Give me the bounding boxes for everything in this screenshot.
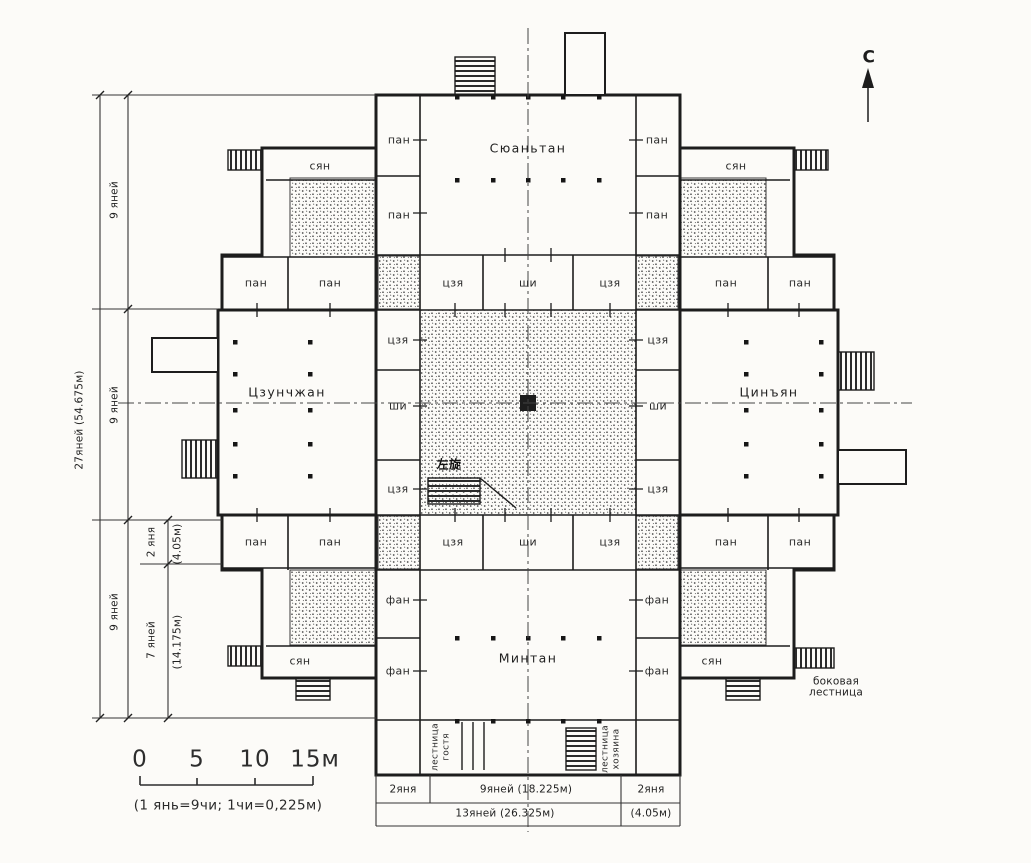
room-label-jia-5: цзя	[647, 335, 668, 346]
room-label-pan-7: пан	[715, 278, 737, 289]
room-label-fan-4: фан	[645, 666, 670, 677]
side-stair-label: боковая лестница	[800, 677, 872, 698]
room-label-jia-7: цзя	[442, 537, 463, 548]
room-label-shi-4: ши	[519, 537, 537, 548]
dim-2yan-m: (4.05м)	[173, 524, 184, 565]
room-label-fan-3: фан	[645, 595, 670, 606]
room-label-fan-2: фан	[386, 666, 411, 677]
guest-stair-label: лестница гостя	[431, 715, 452, 779]
room-label-syan-4: сян	[701, 656, 722, 667]
room-label-shi-3: ши	[649, 401, 667, 412]
dim-bottom-9yan: 9яней (18.225м)	[480, 785, 572, 796]
dim-2yan: 2 яня	[147, 527, 158, 558]
room-label-syan-2: сян	[725, 161, 746, 172]
scale-tick-10: 10	[239, 755, 270, 766]
room-label-syan-1: сян	[309, 161, 330, 172]
hall-label-north: Сюаньтан	[490, 143, 567, 154]
room-label-pan-6: пан	[319, 278, 341, 289]
dim-bottom-4m: (4.05м)	[631, 809, 672, 820]
floor-plan-page: Сюаньтан Цзунчжан Цинъян Минтан пан пан …	[0, 0, 1031, 863]
floor-plan-drawing	[0, 0, 1031, 863]
dim-total-height: 27яней (54.675м)	[75, 370, 86, 469]
dim-9yan-2: 9 яней	[110, 386, 121, 424]
room-label-pan-12: пан	[789, 537, 811, 548]
owner-stair-label: лестница хозяина	[601, 717, 622, 781]
dim-9yan-3: 9 яней	[110, 593, 121, 631]
scale-tick-0: 0	[132, 755, 148, 766]
room-label-syan-3: сян	[289, 656, 310, 667]
dim-bottom-2yan-left: 2яня	[390, 785, 417, 796]
left-turn-annotation: 左旋	[437, 460, 462, 471]
room-label-fan-1: фан	[386, 595, 411, 606]
room-label-jia-4: цзя	[387, 484, 408, 495]
room-label-pan-11: пан	[715, 537, 737, 548]
dim-7yan: 7 яней	[147, 621, 158, 659]
dim-bottom-13yan: 13яней (26.325м)	[455, 809, 554, 820]
room-label-shi-1: ши	[519, 278, 537, 289]
dim-9yan-1: 9 яней	[110, 181, 121, 219]
hall-label-south: Минтан	[499, 653, 558, 664]
room-label-pan-5: пан	[245, 278, 267, 289]
room-label-jia-6: цзя	[647, 484, 668, 495]
scale-tick-5: 5	[189, 755, 205, 766]
room-label-jia-8: цзя	[599, 537, 620, 548]
room-label-pan-3: пан	[646, 135, 668, 146]
dim-7yan-m: (14.175м)	[173, 615, 184, 670]
room-label-pan-8: пан	[789, 278, 811, 289]
scale-tick-15: 15м	[290, 755, 340, 766]
room-label-shi-2: ши	[389, 401, 407, 412]
room-label-pan-10: пан	[319, 537, 341, 548]
room-label-jia-3: цзя	[387, 335, 408, 346]
room-label-pan-9: пан	[245, 537, 267, 548]
room-label-pan-1: пан	[388, 135, 410, 146]
room-label-pan-4: пан	[646, 210, 668, 221]
hall-label-west: Цзунчжан	[248, 387, 326, 398]
hall-label-east: Цинъян	[740, 387, 799, 398]
north-label: С	[863, 53, 876, 64]
room-label-jia-2: цзя	[599, 278, 620, 289]
dim-bottom-2yan-right: 2яня	[638, 785, 665, 796]
room-label-pan-2: пан	[388, 210, 410, 221]
scale-note: (1 янь=9чи; 1чи=0,225м)	[134, 801, 323, 812]
room-label-jia-1: цзя	[442, 278, 463, 289]
